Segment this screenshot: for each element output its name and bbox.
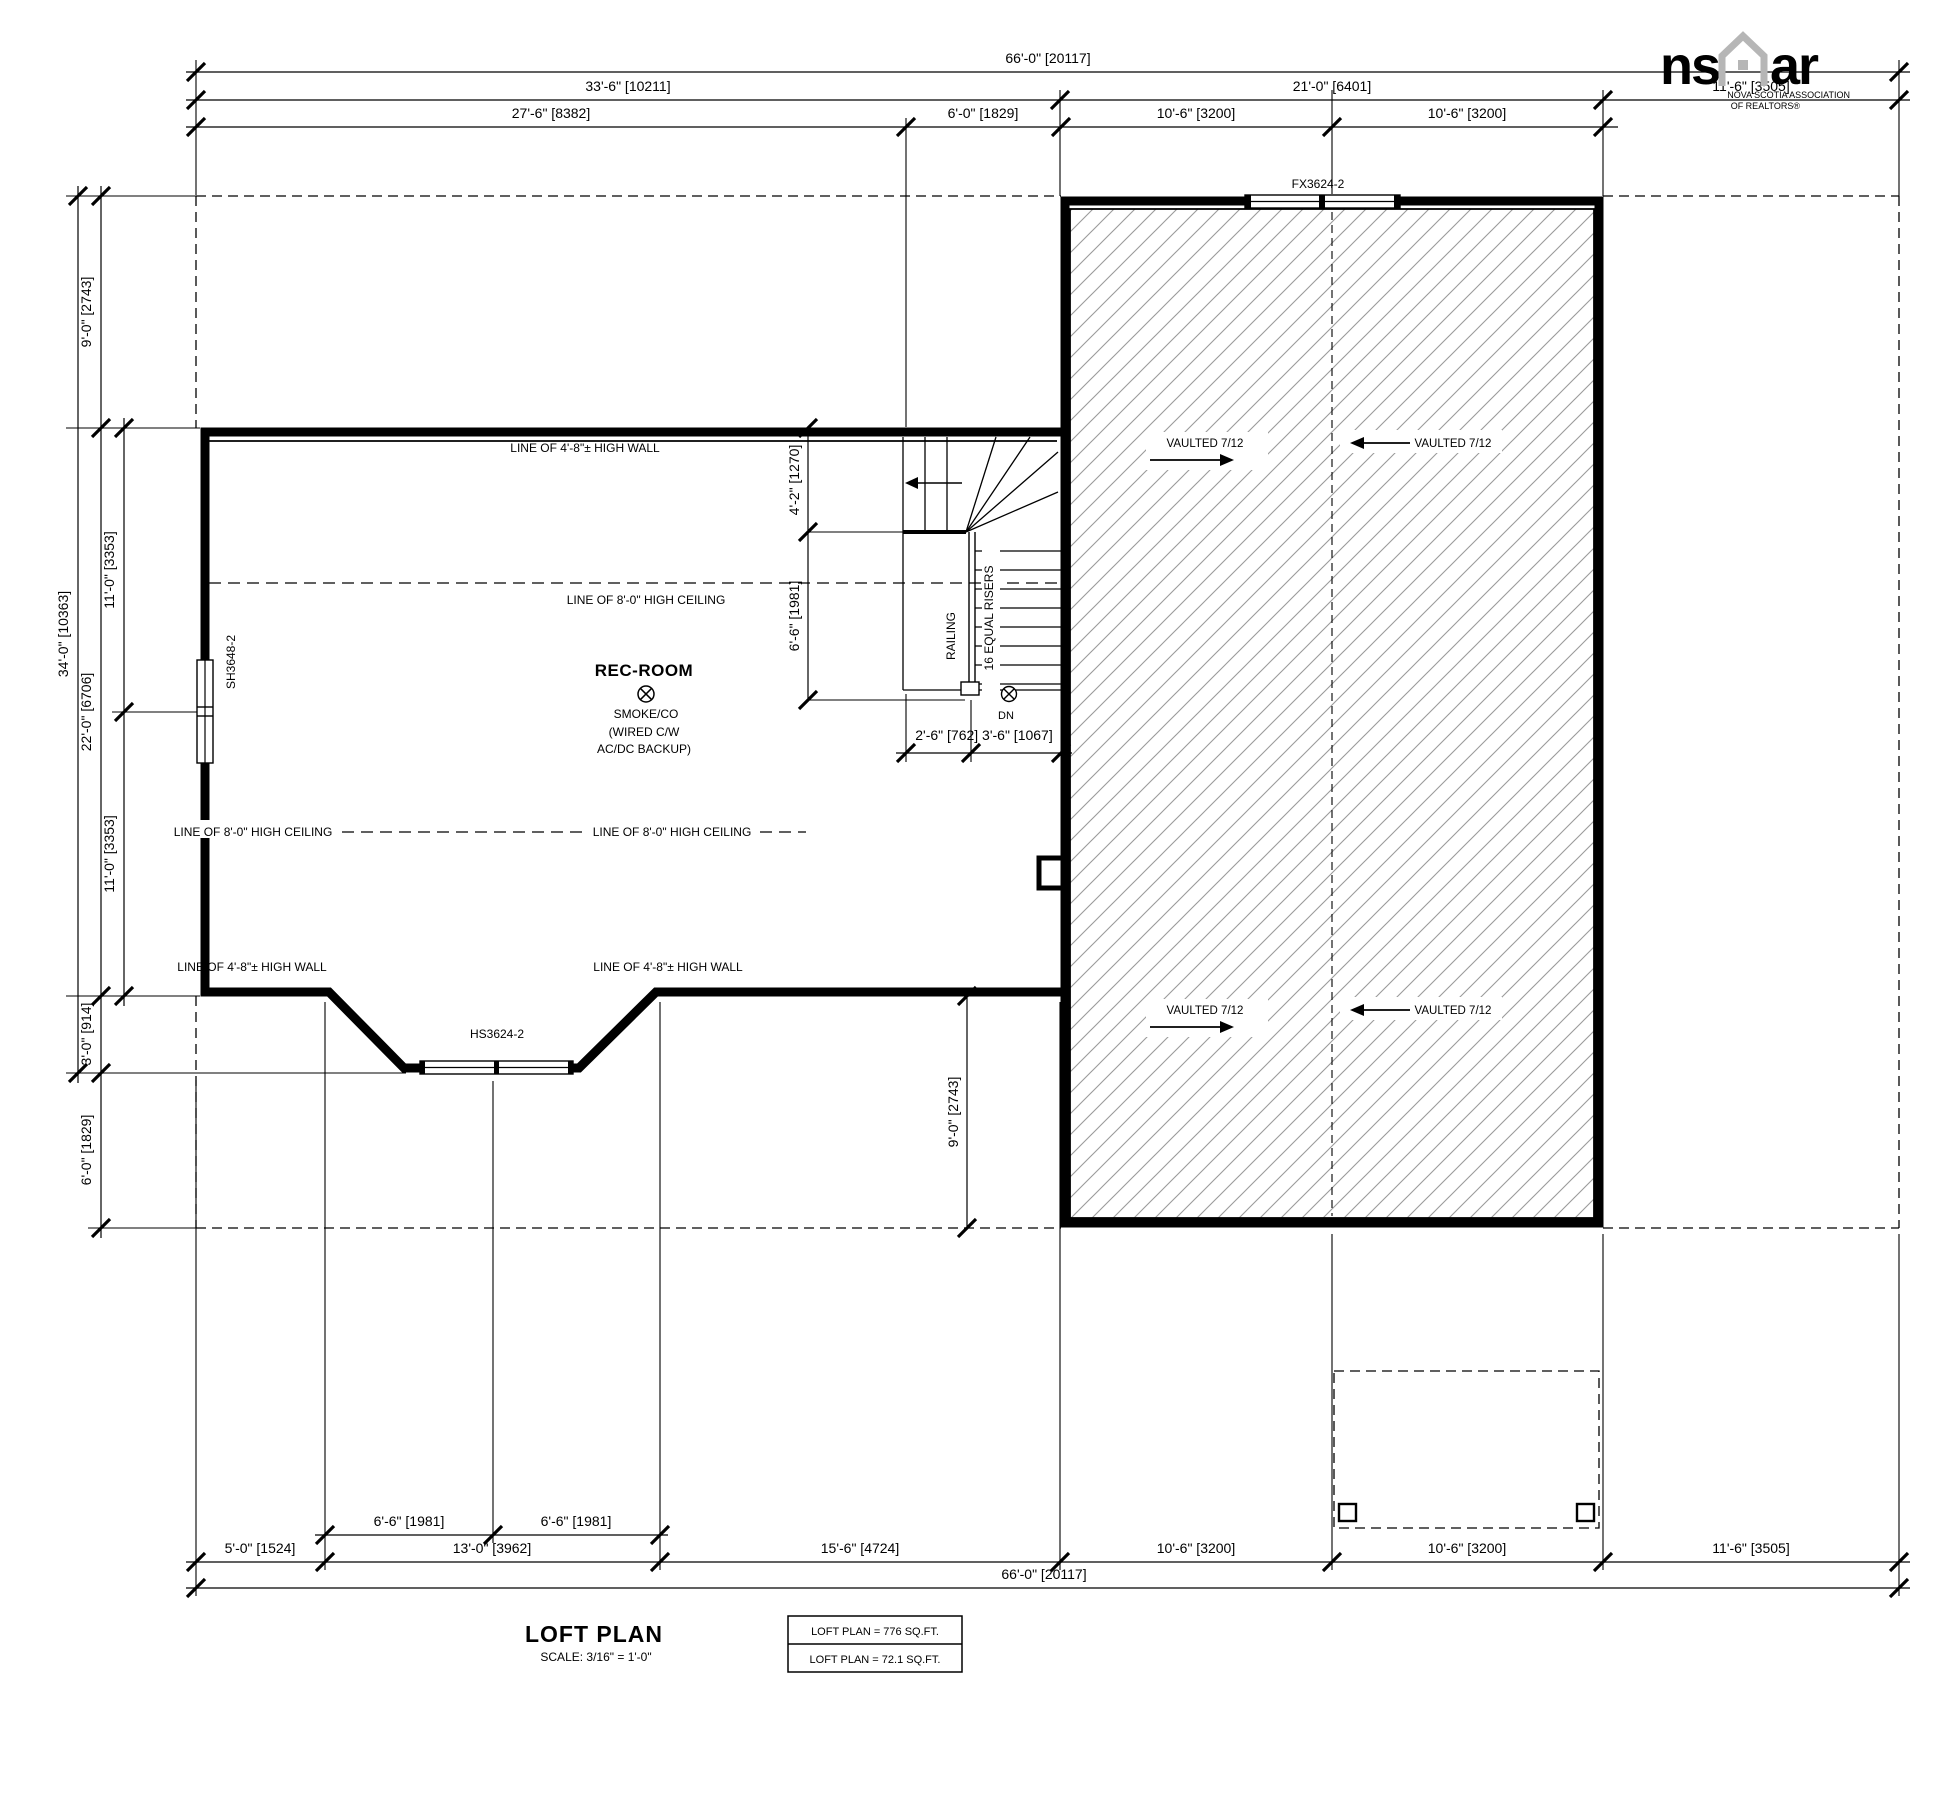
window-hs3624: [420, 1061, 573, 1074]
room-name: REC-ROOM: [595, 661, 693, 680]
area-table-row2: LOFT PLAN = 72.1 SQ.FT.: [810, 1654, 941, 1666]
dim-bottom-5-0: 5'-0" [1524]: [225, 1540, 296, 1556]
smoke-label-1: SMOKE/CO: [614, 707, 679, 721]
dim-left-6-0: 6'-0" [1829]: [78, 1115, 94, 1186]
stair-risers-label: 16 EQUAL RISERS: [982, 566, 996, 671]
nsar-logo-right-text: ar: [1770, 36, 1819, 96]
deck-post-right: [1577, 1504, 1594, 1521]
smoke-label-3: AC/DC BACKUP): [597, 742, 691, 756]
window-sh3648-label: SH3648-2: [224, 635, 238, 689]
vaulted-label-top-right: VAULTED 7/12: [1415, 438, 1492, 450]
dim-stair-winder: 4'-2" [1270]: [786, 445, 802, 516]
label-ceiling-lower-left: LINE OF 8'-0" HIGH CEILING: [174, 825, 333, 839]
vaulted-label-bottom-right: VAULTED 7/12: [1415, 1005, 1492, 1017]
label-high-wall-top: LINE OF 4'-8"± HIGH WALL: [510, 441, 660, 455]
vaulted-label-bottom-left: VAULTED 7/12: [1167, 1005, 1244, 1017]
dim-bottom-6-6-a: 6'-6" [1981]: [374, 1513, 445, 1529]
dim-left-11-0-b: 11'-0" [3353]: [101, 815, 117, 892]
window-fx3624: [1245, 195, 1400, 208]
label-high-wall-lower-right: LINE OF 4'-8"± HIGH WALL: [593, 960, 743, 974]
dim-left-3-0: 3'-0" [914]: [78, 1003, 94, 1066]
dim-left-22-0: 22'-0" [6706]: [78, 673, 94, 751]
label-ceiling-lower-right: LINE OF 8'-0" HIGH CEILING: [593, 825, 752, 839]
dim-left-11-0-a: 11'-0" [3353]: [101, 531, 117, 608]
dim-top-6-0: 6'-0" [1829]: [948, 105, 1019, 121]
dim-bottom-overall: 66'-0" [20117]: [1001, 1566, 1086, 1582]
dim-bottom-13-0: 13'-0" [3962]: [453, 1540, 531, 1556]
label-high-wall-lower-left: LINE OF 4'-8"± HIGH WALL: [177, 960, 327, 974]
dim-top-10-6-b: 10'-6" [3200]: [1428, 105, 1506, 121]
smoke-label-2: (WIRED C/W: [609, 725, 680, 739]
dim-bottom-6-6-b: 6'-6" [1981]: [541, 1513, 612, 1529]
deck-post-left: [1339, 1504, 1356, 1521]
dim-top-33-6: 33'-6" [10211]: [585, 78, 670, 94]
dim-top-10-6-a: 10'-6" [3200]: [1157, 105, 1235, 121]
dim-stair-widths: 2'-6" [762] 3'-6" [1067]: [915, 727, 1052, 743]
dim-top-27-6: 27'-6" [8382]: [512, 105, 590, 121]
plan-scale: SCALE: 3/16" = 1'-0": [540, 1650, 651, 1664]
dim-roof-depth: 9'-0" [2743]: [945, 1077, 961, 1148]
dim-bottom-10-6-b: 10'-6" [3200]: [1428, 1540, 1506, 1556]
nsar-logo-left-text: ns: [1660, 36, 1719, 96]
loft-plan-drawing: VAULTED 7/12 VAULTED 7/12 VAULTED 7/12 V…: [0, 0, 1956, 1800]
window-fx3624-label: FX3624-2: [1292, 177, 1345, 191]
dim-bottom-11-6: 11'-6" [3505]: [1712, 1540, 1789, 1556]
window-hs3624-label: HS3624-2: [470, 1027, 524, 1041]
dim-top-overall: 66'-0" [20117]: [1005, 50, 1090, 66]
plan-title: LOFT PLAN: [525, 1621, 663, 1647]
nsar-logo-caption-1: NOVA SCOTIA ASSOCIATION: [1727, 90, 1850, 100]
window-sh3648: [197, 660, 213, 763]
stair-down-label: DN: [998, 710, 1014, 722]
dim-stair-run: 6'-6" [1981]: [786, 581, 802, 652]
canvas-background: [0, 0, 1956, 1800]
dim-bottom-15-6: 15'-6" [4724]: [821, 1540, 899, 1556]
nsar-logo-caption-2: OF REALTORS®: [1731, 101, 1801, 111]
wall-post: [1039, 858, 1063, 888]
stair-newel-symbol: [1002, 687, 1017, 702]
dim-left-9-0: 9'-0" [2743]: [78, 277, 94, 348]
area-table-row1: LOFT PLAN = 776 SQ.FT.: [811, 1626, 939, 1638]
dim-bottom-10-6-a: 10'-6" [3200]: [1157, 1540, 1235, 1556]
vaulted-label-top-left: VAULTED 7/12: [1167, 438, 1244, 450]
dim-top-21-0: 21'-0" [6401]: [1293, 78, 1371, 94]
label-ceiling-upper: LINE OF 8'-0" HIGH CEILING: [567, 593, 726, 607]
stair-railing-label: RAILING: [944, 612, 958, 660]
dim-left-total: 34'-0" [10363]: [55, 591, 71, 677]
nsar-logo-house-dot: [1738, 60, 1748, 70]
